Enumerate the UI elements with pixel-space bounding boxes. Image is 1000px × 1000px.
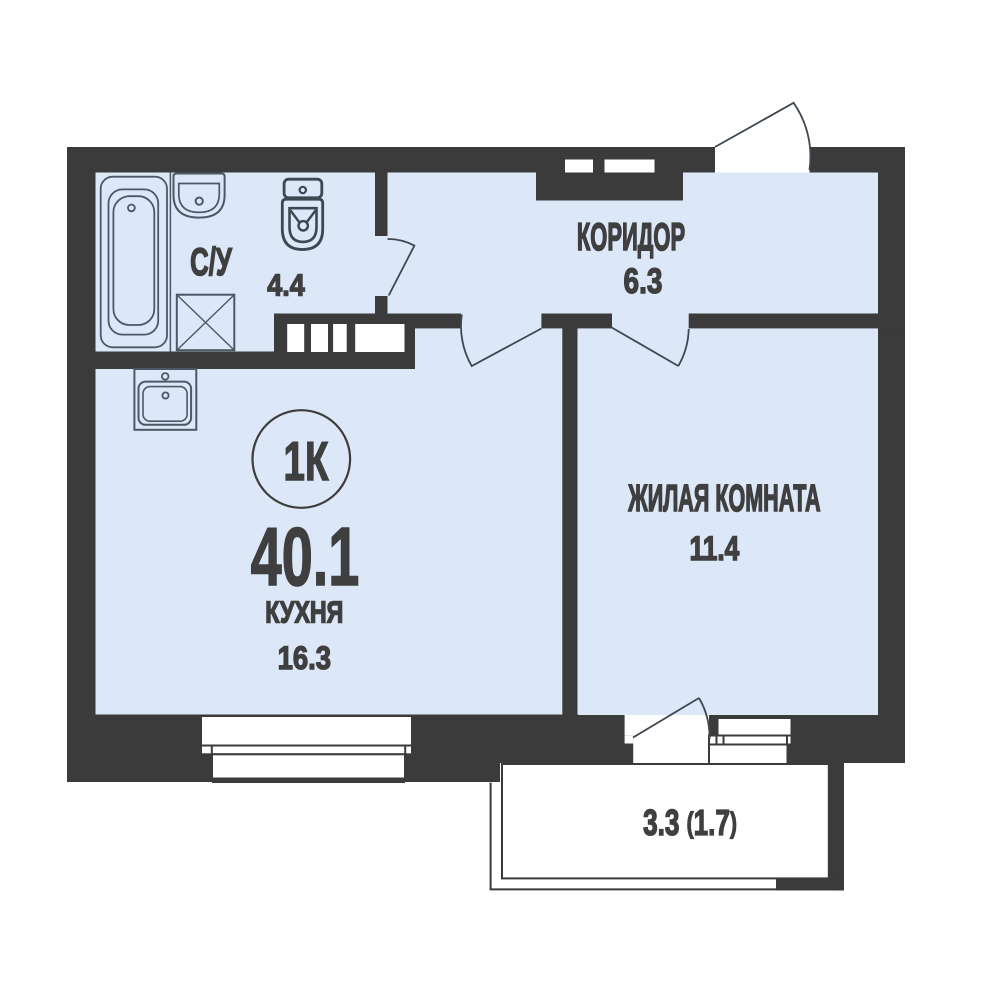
svg-text:40.1: 40.1: [251, 510, 360, 603]
svg-text:КУХНЯ: КУХНЯ: [265, 594, 343, 629]
svg-text:6.3: 6.3: [624, 261, 663, 301]
svg-text:3.3 (1.7): 3.3 (1.7): [643, 802, 737, 843]
svg-text:1К: 1К: [284, 431, 330, 492]
svg-text:11.4: 11.4: [690, 529, 740, 568]
svg-text:КОРИДОР: КОРИДОР: [577, 216, 685, 259]
svg-text:16.3: 16.3: [278, 641, 331, 677]
svg-text:ЖИЛАЯ КОМНАТА: ЖИЛАЯ КОМНАТА: [628, 477, 821, 520]
svg-text:С/У: С/У: [190, 241, 232, 285]
svg-text:4.4: 4.4: [267, 269, 304, 303]
